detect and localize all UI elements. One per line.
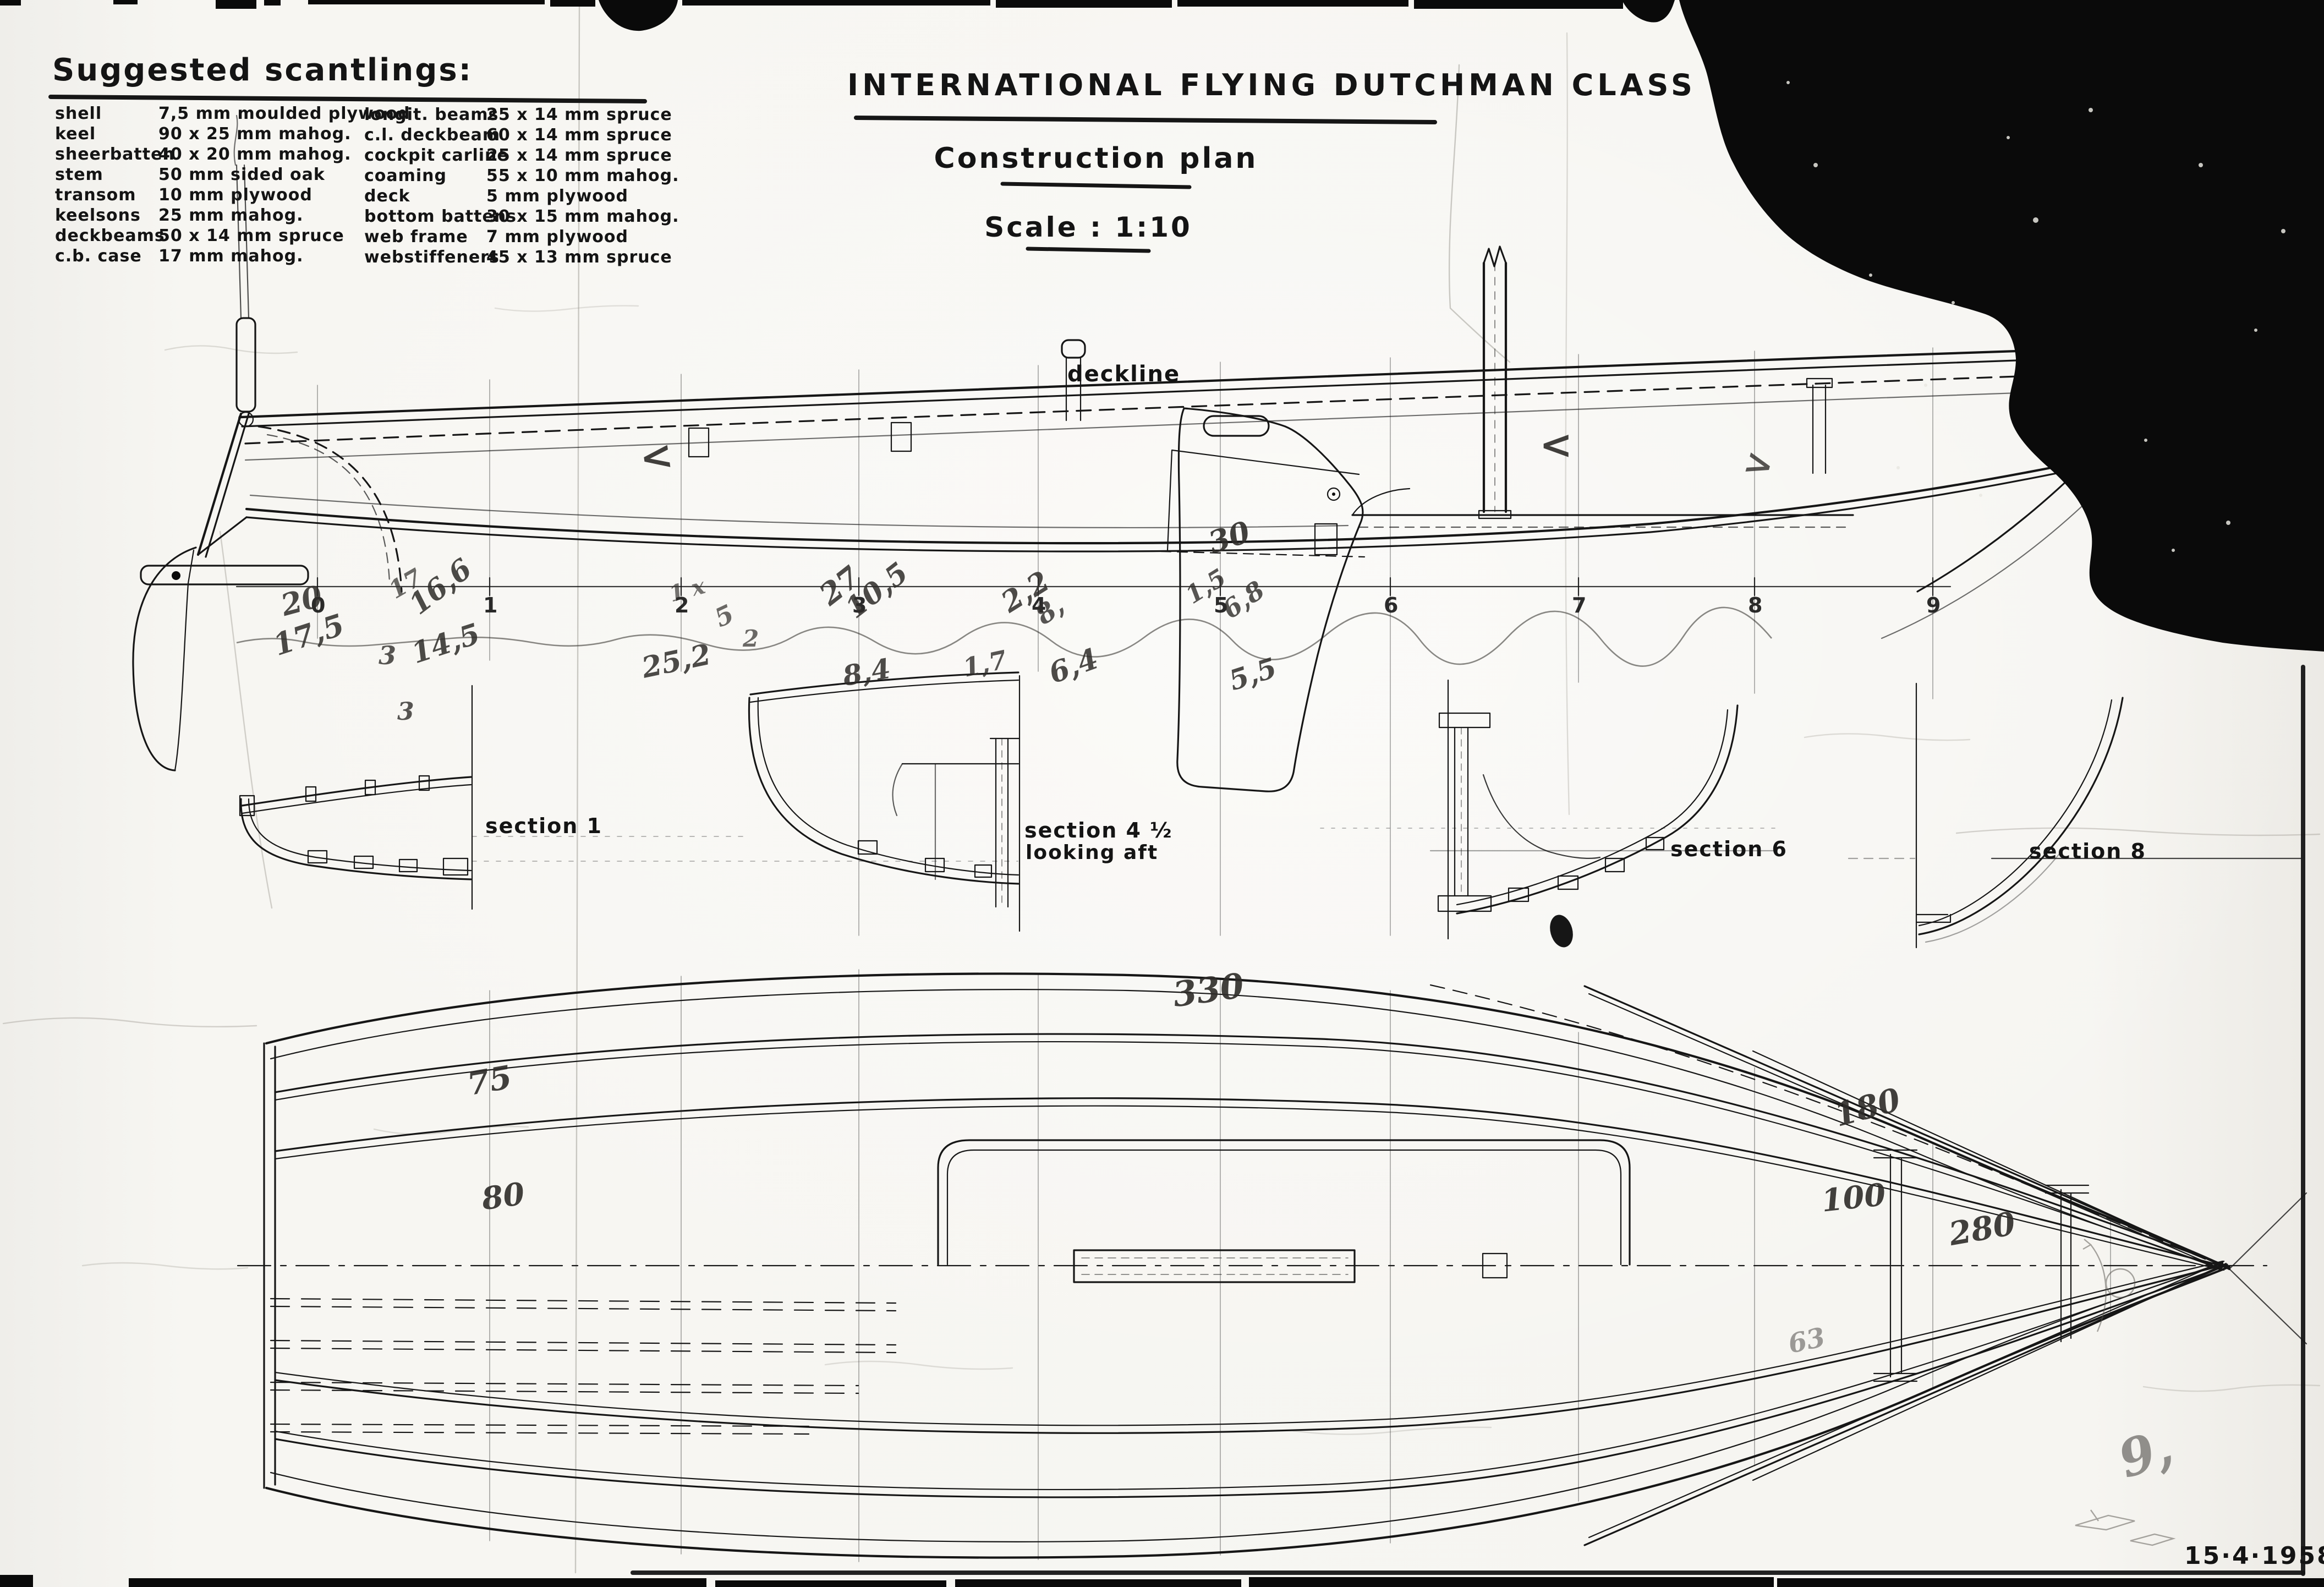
scantling-row: keelsons25 mm mahog.: [55, 207, 410, 228]
section-4half-label: section 4 ½: [1024, 820, 1173, 841]
scantling-row: bottom battens30 x 15 mm mahog.: [364, 209, 679, 229]
scantling-row: c.b. case17 mm mahog.: [55, 248, 410, 269]
station-number: 6: [1384, 593, 1398, 617]
scantlings-title: Suggested scantlings:: [52, 55, 473, 86]
handwritten-annotation: <: [637, 435, 676, 479]
handwritten-annotation: 3: [379, 643, 396, 668]
drawing-title: INTERNATIONAL FLYING DUTCHMAN CLASS: [847, 70, 1447, 100]
handwritten-annotation: 100: [1820, 1179, 1887, 1217]
handwritten-annotation: 2: [743, 627, 759, 650]
drawing-subtitle: Construction plan: [903, 144, 1289, 173]
scantling-row: stem50 mm sided oak: [55, 167, 410, 187]
scantling-row: c.l. deckbeam60 x 14 mm spruce: [364, 127, 679, 147]
scantling-row: transom10 mm plywood: [55, 187, 410, 207]
station-number: 1: [483, 593, 497, 617]
scantling-row: web frame7 mm plywood: [364, 229, 679, 249]
scantling-row: webstiffeners45 x 13 mm spruce: [364, 249, 679, 270]
scantling-row: longit. beams25 x 14 mm spruce: [364, 107, 679, 127]
scantlings-left-column: shell7,5 mm moulded plywoodkeel90 x 25 m…: [55, 106, 410, 269]
station-number: 8: [1748, 593, 1762, 617]
scantling-row: sheerbatten40 x 20 mm mahog.: [55, 146, 410, 167]
scantling-row: deckbeams50 x 14 mm spruce: [55, 228, 410, 248]
scantling-row: cockpit carline25 x 14 mm spruce: [364, 147, 679, 168]
blueprint-sheet: Suggested scantlings: shell7,5 mm moulde…: [0, 0, 2324, 1587]
scantling-row: deck5 mm plywood: [364, 188, 679, 209]
scantling-row: keel90 x 25 mm mahog.: [55, 126, 410, 146]
handwritten-annotation: 75: [465, 1061, 514, 1100]
station-number: 9: [1926, 593, 1941, 617]
handwritten-annotation: <: [1539, 425, 1572, 464]
section-1-label: section 1: [485, 816, 602, 836]
handwritten-annotation: 3: [397, 700, 414, 724]
station-number: 7: [1572, 593, 1586, 617]
scantling-row: coaming55 x 10 mm mahog.: [364, 168, 679, 188]
looking-aft-label: looking aft: [1026, 843, 1158, 863]
date-stamp: 15·4·1958: [2184, 1544, 2324, 1568]
handwritten-annotation: 330: [1171, 968, 1246, 1012]
torn-corner: [1679, 0, 2324, 652]
plan-view: [238, 970, 2306, 1562]
handwritten-annotation: 80: [480, 1178, 527, 1214]
sections-view: [240, 672, 2301, 950]
section-6-label: section 6: [1670, 839, 1788, 860]
deckline-label: deckline: [1067, 363, 1180, 385]
handwritten-annotation: 63: [1786, 1324, 1827, 1358]
scantlings-right-column: longit. beams25 x 14 mm sprucec.l. deckb…: [364, 107, 679, 270]
scantling-row: shell7,5 mm moulded plywood: [55, 106, 410, 126]
section-8-label: section 8: [2029, 841, 2146, 862]
handwritten-annotation: 8,4: [841, 655, 892, 690]
drawing-scale: Scale : 1:10: [896, 214, 1281, 241]
